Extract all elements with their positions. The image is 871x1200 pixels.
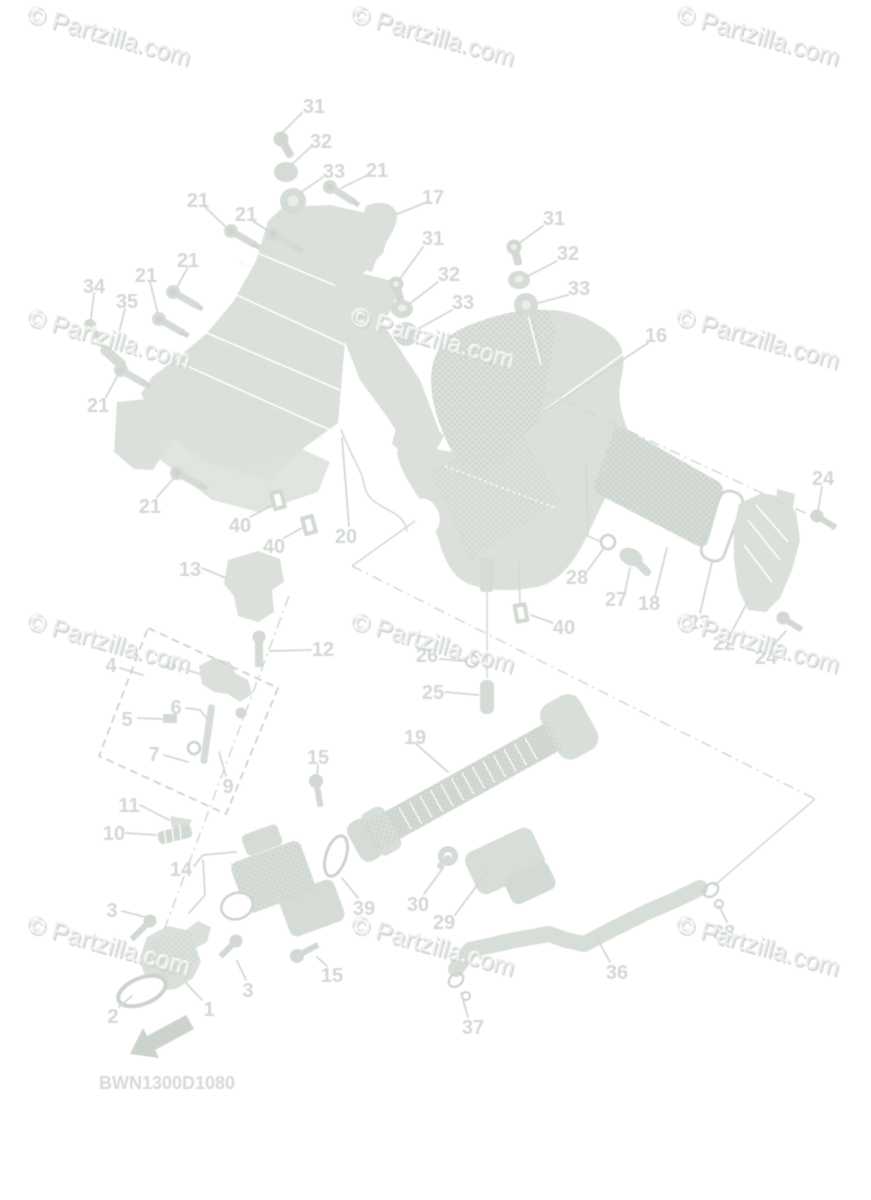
svg-text:27: 27	[605, 589, 627, 611]
svg-text:21: 21	[235, 204, 257, 226]
svg-text:3: 3	[242, 980, 253, 1002]
svg-text:7: 7	[148, 744, 159, 766]
svg-text:2: 2	[107, 1006, 118, 1028]
svg-text:12: 12	[312, 639, 334, 661]
svg-text:21: 21	[177, 250, 199, 272]
svg-text:31: 31	[543, 208, 565, 230]
svg-text:32: 32	[310, 131, 332, 153]
svg-text:33: 33	[323, 161, 345, 183]
svg-text:33: 33	[568, 278, 590, 300]
svg-text:5: 5	[121, 709, 132, 731]
svg-text:34: 34	[83, 276, 106, 298]
svg-text:31: 31	[422, 228, 444, 250]
svg-text:6: 6	[170, 697, 181, 719]
svg-text:10: 10	[103, 823, 125, 845]
svg-text:9: 9	[222, 776, 233, 798]
svg-text:40: 40	[553, 617, 575, 639]
svg-text:36: 36	[606, 962, 628, 984]
svg-text:15: 15	[321, 965, 343, 987]
svg-text:24: 24	[812, 468, 835, 490]
svg-text:32: 32	[438, 264, 460, 286]
svg-text:28: 28	[566, 567, 588, 589]
svg-text:40: 40	[263, 536, 285, 558]
svg-text:33: 33	[452, 292, 474, 314]
svg-text:3: 3	[106, 900, 117, 922]
svg-text:21: 21	[187, 190, 209, 212]
svg-text:19: 19	[404, 727, 426, 749]
svg-text:21: 21	[87, 395, 109, 417]
svg-text:18: 18	[638, 593, 660, 615]
svg-text:13: 13	[179, 559, 201, 581]
svg-text:1: 1	[203, 999, 214, 1021]
svg-text:14: 14	[170, 859, 193, 881]
svg-text:BWN1300D1080: BWN1300D1080	[99, 1073, 235, 1093]
svg-text:15: 15	[307, 747, 329, 769]
svg-text:30: 30	[407, 894, 429, 916]
svg-text:35: 35	[116, 291, 138, 313]
svg-text:32: 32	[557, 243, 579, 265]
svg-text:31: 31	[303, 96, 325, 118]
svg-text:20: 20	[335, 526, 357, 548]
svg-text:17: 17	[422, 187, 444, 209]
svg-text:25: 25	[422, 682, 444, 704]
svg-text:40: 40	[229, 515, 251, 537]
svg-text:16: 16	[645, 325, 667, 347]
svg-text:37: 37	[462, 1017, 484, 1039]
svg-text:21: 21	[366, 160, 388, 182]
svg-text:21: 21	[135, 265, 157, 287]
svg-text:21: 21	[139, 496, 161, 518]
svg-text:11: 11	[118, 795, 139, 817]
